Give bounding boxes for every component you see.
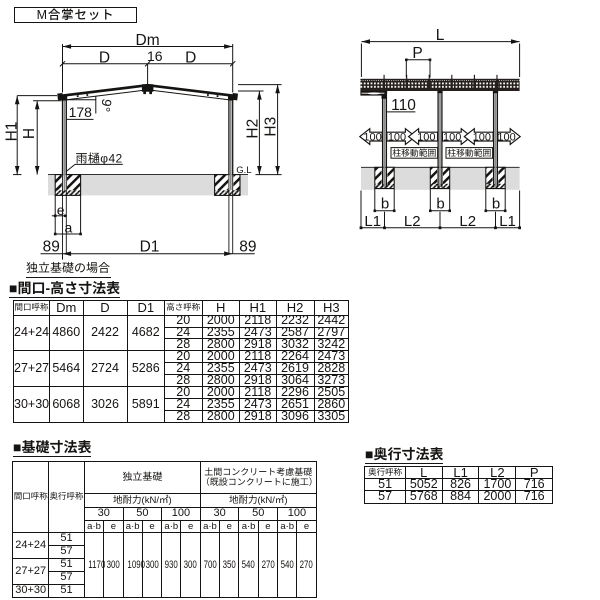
svg-text:L2: L2 xyxy=(404,213,421,230)
svg-text:89: 89 xyxy=(239,239,256,256)
svg-text:雨樋φ42: 雨樋φ42 xyxy=(76,151,123,165)
svg-text:100: 100 xyxy=(388,131,406,143)
svg-text:100: 100 xyxy=(363,131,381,143)
svg-text:L: L xyxy=(436,27,445,44)
svg-text:P: P xyxy=(412,45,422,62)
svg-text:16: 16 xyxy=(147,48,163,64)
svg-text:100: 100 xyxy=(497,131,515,143)
svg-text:e: e xyxy=(57,202,65,218)
svg-text:L1: L1 xyxy=(364,213,381,230)
svg-text:L2: L2 xyxy=(459,213,476,230)
svg-text:9°: 9° xyxy=(97,98,114,114)
svg-text:100: 100 xyxy=(417,131,435,143)
svg-text:L1: L1 xyxy=(499,213,516,230)
svg-text:Dm: Dm xyxy=(136,32,160,49)
svg-text:H1: H1 xyxy=(3,122,20,142)
svg-text:178: 178 xyxy=(69,104,93,120)
svg-text:b: b xyxy=(381,195,389,212)
svg-text:H: H xyxy=(21,128,38,139)
svg-text:H3: H3 xyxy=(263,117,280,137)
svg-text:D: D xyxy=(99,49,110,66)
svg-text:D: D xyxy=(185,49,196,66)
svg-text:G.L: G.L xyxy=(236,165,251,176)
svg-text:a: a xyxy=(65,220,73,236)
svg-text:100: 100 xyxy=(473,131,491,143)
svg-text:b: b xyxy=(436,195,444,212)
svg-text:柱移動範囲: 柱移動範囲 xyxy=(447,148,491,158)
svg-text:100: 100 xyxy=(443,131,461,143)
svg-text:柱移動範囲: 柱移動範囲 xyxy=(392,148,436,158)
svg-text:D1: D1 xyxy=(140,239,160,256)
svg-text:H2: H2 xyxy=(245,119,262,139)
svg-text:89: 89 xyxy=(43,239,60,256)
svg-text:b: b xyxy=(492,195,500,212)
